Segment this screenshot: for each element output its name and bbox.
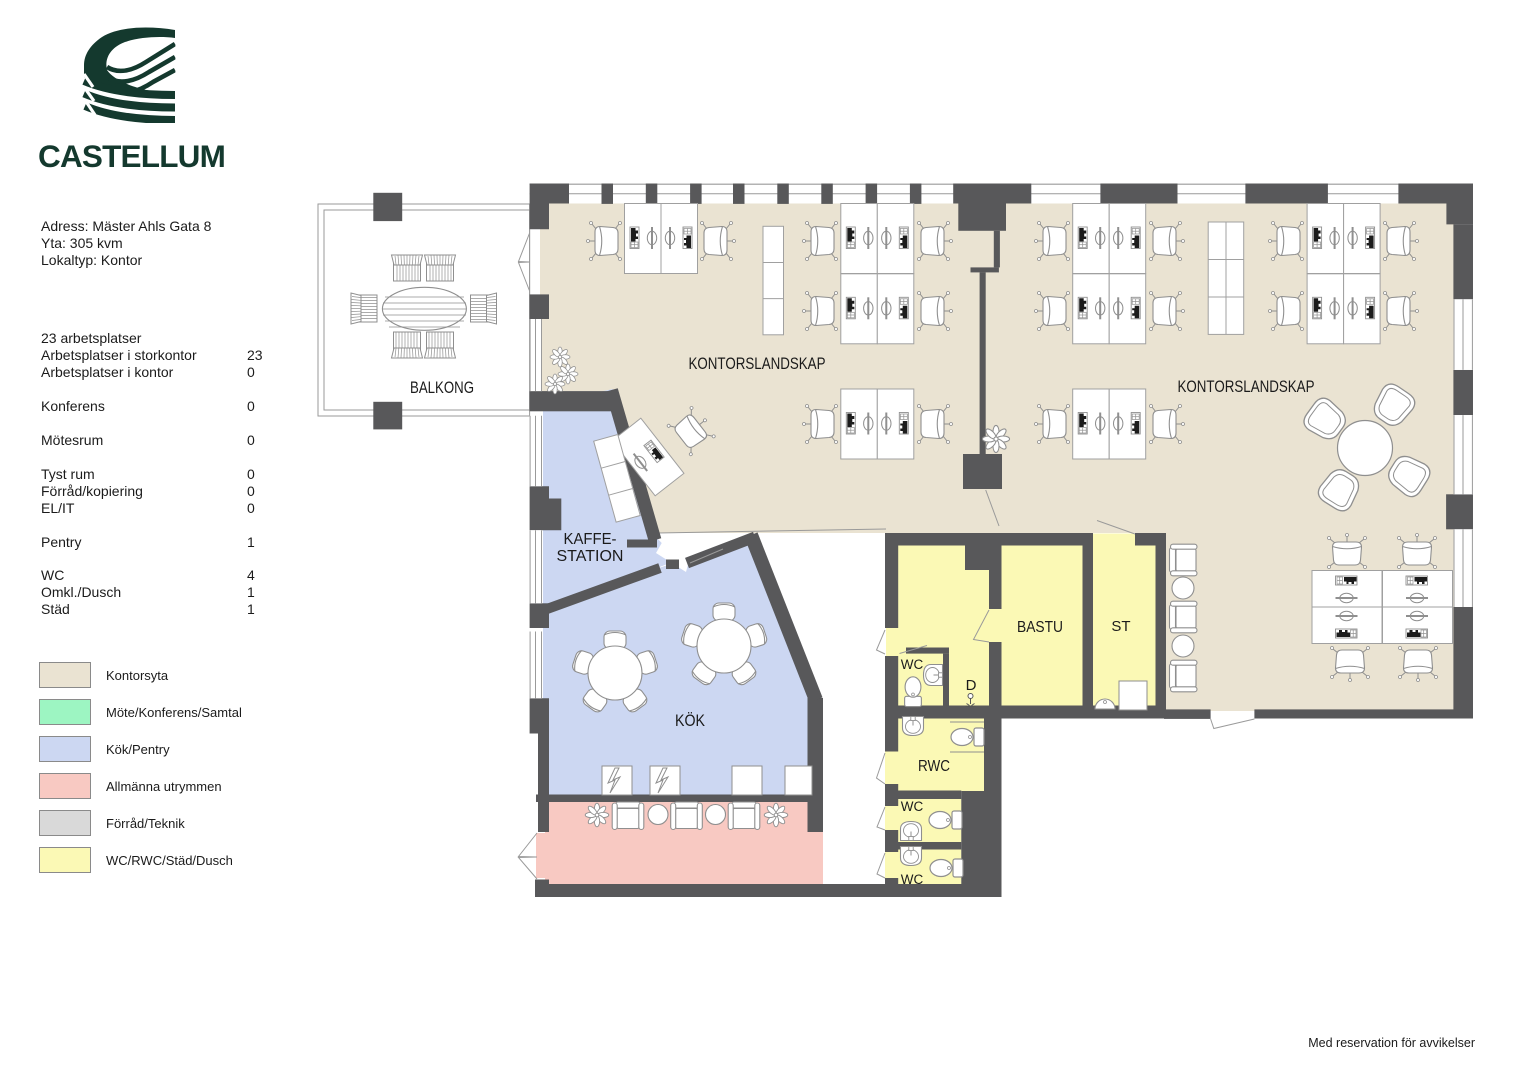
svg-text:WC: WC (901, 657, 924, 672)
svg-text:KONTORSLANDSKAP: KONTORSLANDSKAP (689, 354, 826, 373)
svg-text:D: D (966, 677, 977, 694)
svg-text:KÖK: KÖK (675, 711, 706, 730)
svg-text:KONTORSLANDSKAP: KONTORSLANDSKAP (1178, 377, 1315, 396)
svg-text:BASTU: BASTU (1017, 619, 1063, 636)
svg-text:RWC: RWC (918, 758, 950, 775)
svg-text:WC: WC (901, 872, 924, 887)
svg-text:STATION: STATION (557, 548, 624, 565)
svg-text:KAFFE-: KAFFE- (564, 531, 617, 548)
svg-text:BALKONG: BALKONG (410, 378, 474, 397)
svg-text:ST: ST (1111, 618, 1130, 635)
svg-text:WC: WC (901, 799, 924, 814)
